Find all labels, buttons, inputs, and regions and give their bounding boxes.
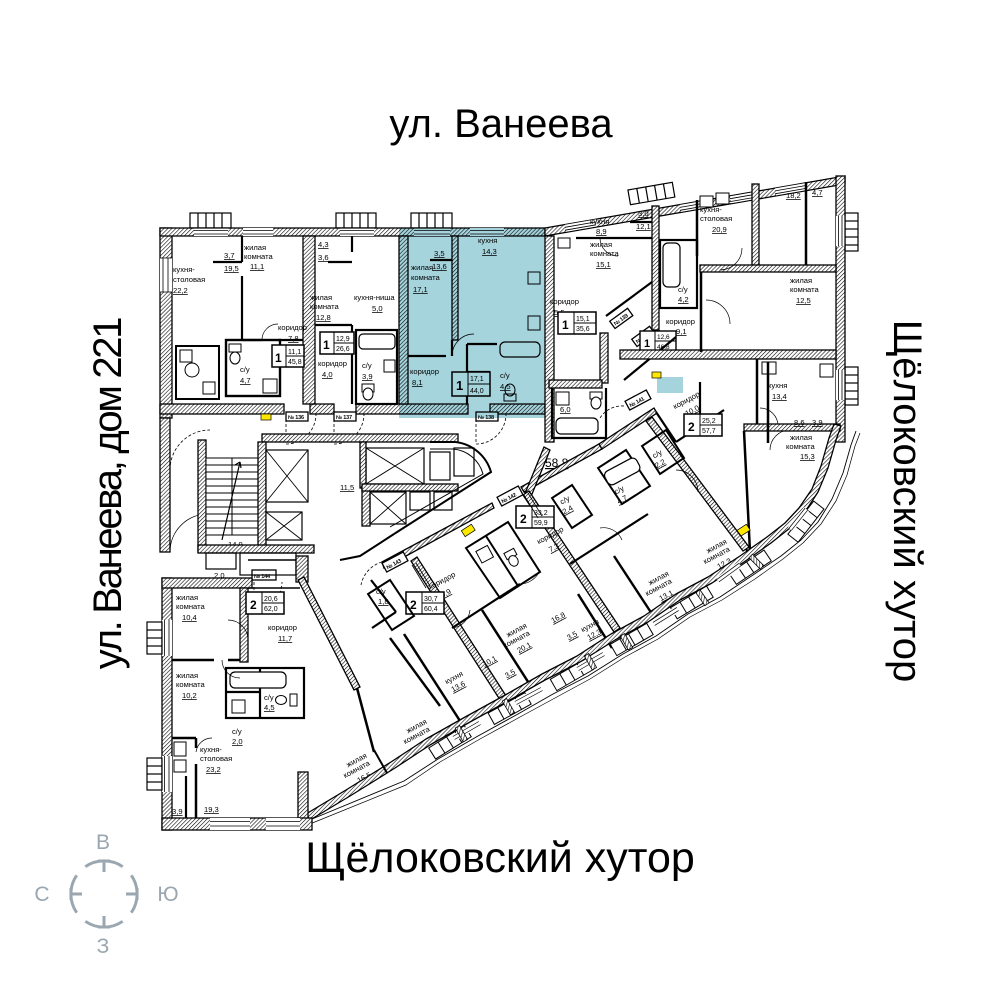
svg-text:ул. Ванеева: ул. Ванеева <box>389 102 613 146</box>
svg-text:2: 2 <box>250 598 257 612</box>
svg-text:коридор: коридор <box>278 323 307 332</box>
svg-text:Ю: Ю <box>157 883 178 906</box>
svg-text:кухня: кухня <box>768 381 787 390</box>
svg-text:3,9: 3,9 <box>172 807 183 816</box>
svg-text:59,9: 59,9 <box>534 520 548 527</box>
svg-text:26,6: 26,6 <box>336 346 350 353</box>
svg-text:3,6: 3,6 <box>318 253 329 262</box>
svg-text:15,1: 15,1 <box>576 316 590 323</box>
svg-text:жилая: жилая <box>244 243 266 252</box>
svg-text:3,9: 3,9 <box>362 372 373 381</box>
svg-text:11,1: 11,1 <box>288 349 301 356</box>
svg-text:1: 1 <box>323 338 330 352</box>
svg-text:4,7: 4,7 <box>240 376 251 385</box>
svg-text:12,6: 12,6 <box>657 334 670 341</box>
svg-text:4,2: 4,2 <box>678 295 689 304</box>
svg-text:1: 1 <box>562 318 569 332</box>
svg-text:4,7: 4,7 <box>812 188 823 197</box>
svg-text:3,9: 3,9 <box>812 418 823 427</box>
svg-text:15,1: 15,1 <box>596 260 611 269</box>
svg-text:комната: комната <box>176 680 205 689</box>
svg-text:12,5: 12,5 <box>796 296 811 305</box>
svg-text:57,7: 57,7 <box>702 428 716 435</box>
svg-text:20,6: 20,6 <box>264 596 278 603</box>
svg-text:12,9: 12,9 <box>336 336 350 343</box>
svg-text:23,2: 23,2 <box>206 765 221 774</box>
svg-text:45,8: 45,8 <box>288 359 302 366</box>
svg-text:20,9: 20,9 <box>712 225 727 234</box>
svg-text:19,5: 19,5 <box>224 264 239 273</box>
svg-text:11,5: 11,5 <box>340 483 354 492</box>
svg-text:коридор: коридор <box>268 623 297 632</box>
svg-text:62,0: 62,0 <box>264 606 278 613</box>
svg-text:2: 2 <box>520 512 527 526</box>
svg-text:столовая: столовая <box>173 275 205 284</box>
svg-text:столовая: столовая <box>700 214 732 223</box>
svg-text:30,7: 30,7 <box>424 596 438 603</box>
svg-text:№ 136: № 136 <box>288 415 304 421</box>
svg-text:кухня-ниша: кухня-ниша <box>354 293 395 302</box>
svg-text:1: 1 <box>644 338 650 350</box>
svg-text:25,2: 25,2 <box>702 418 716 425</box>
svg-text:22,2: 22,2 <box>173 286 188 295</box>
svg-text:комната: комната <box>310 302 339 311</box>
svg-text:10,2: 10,2 <box>182 691 197 700</box>
svg-text:Щёлоковский хутор: Щёлоковский хутор <box>885 320 929 682</box>
svg-text:с/у: с/у <box>362 361 372 370</box>
svg-text:19,3: 19,3 <box>204 805 219 814</box>
svg-text:60,4: 60,4 <box>424 606 438 613</box>
svg-text:3,0: 3,0 <box>638 209 649 218</box>
svg-text:18,2: 18,2 <box>786 191 801 200</box>
svg-text:11,7: 11,7 <box>278 634 292 643</box>
svg-text:12,1: 12,1 <box>636 222 651 231</box>
svg-text:2,0: 2,0 <box>232 737 243 746</box>
svg-text:коридор: коридор <box>550 297 579 306</box>
svg-text:жилая: жилая <box>176 671 198 680</box>
svg-text:9,1: 9,1 <box>676 327 687 336</box>
svg-text:жилая: жилая <box>176 593 198 602</box>
svg-text:жилая: жилая <box>790 276 812 285</box>
svg-text:комната: комната <box>176 602 205 611</box>
svg-text:коридор: коридор <box>666 317 695 326</box>
svg-text:с/у: с/у <box>232 727 242 736</box>
svg-text:комната: комната <box>244 252 273 261</box>
svg-text:11,1: 11,1 <box>250 262 264 271</box>
svg-text:коридор: коридор <box>318 359 347 368</box>
svg-text:кухня-: кухня- <box>173 265 195 274</box>
svg-text:жилая: жилая <box>310 293 332 302</box>
svg-text:10,4: 10,4 <box>182 613 197 622</box>
svg-text:35,6: 35,6 <box>576 326 590 333</box>
svg-text:кухня-: кухня- <box>200 745 222 754</box>
svg-text:8,9: 8,9 <box>596 227 607 236</box>
svg-text:1: 1 <box>275 351 282 365</box>
svg-text:4,5: 4,5 <box>264 703 275 712</box>
svg-text:с/у: с/у <box>678 285 688 294</box>
svg-text:12,8: 12,8 <box>316 313 331 322</box>
svg-text:7,8: 7,8 <box>288 334 299 343</box>
svg-text:4,3: 4,3 <box>318 240 329 249</box>
svg-text:8,6: 8,6 <box>794 418 805 427</box>
svg-text:кухня: кухня <box>590 217 609 226</box>
svg-text:4,0: 4,0 <box>322 370 333 379</box>
svg-text:В: В <box>96 831 110 854</box>
svg-text:столовая: столовая <box>200 754 232 763</box>
svg-text:комната: комната <box>790 285 819 294</box>
svg-text:5,0: 5,0 <box>372 304 383 313</box>
svg-text:жилая: жилая <box>790 433 812 442</box>
svg-text:6,0: 6,0 <box>560 405 571 414</box>
svg-text:13,4: 13,4 <box>772 392 787 401</box>
svg-text:с/у: с/у <box>264 693 274 702</box>
svg-text:2: 2 <box>688 420 695 434</box>
svg-text:С: С <box>34 883 49 906</box>
svg-text:комната: комната <box>786 442 815 451</box>
svg-text:с/у: с/у <box>240 365 250 374</box>
svg-text:З: З <box>97 935 110 958</box>
svg-text:ул. Ванеева, дом 221: ул. Ванеева, дом 221 <box>86 318 130 669</box>
svg-text:3,7: 3,7 <box>224 251 235 260</box>
svg-text:№ 137: № 137 <box>336 415 352 421</box>
svg-text:15,3: 15,3 <box>800 452 815 461</box>
svg-text:Щёлоковский хутор: Щёлоковский хутор <box>305 834 695 882</box>
